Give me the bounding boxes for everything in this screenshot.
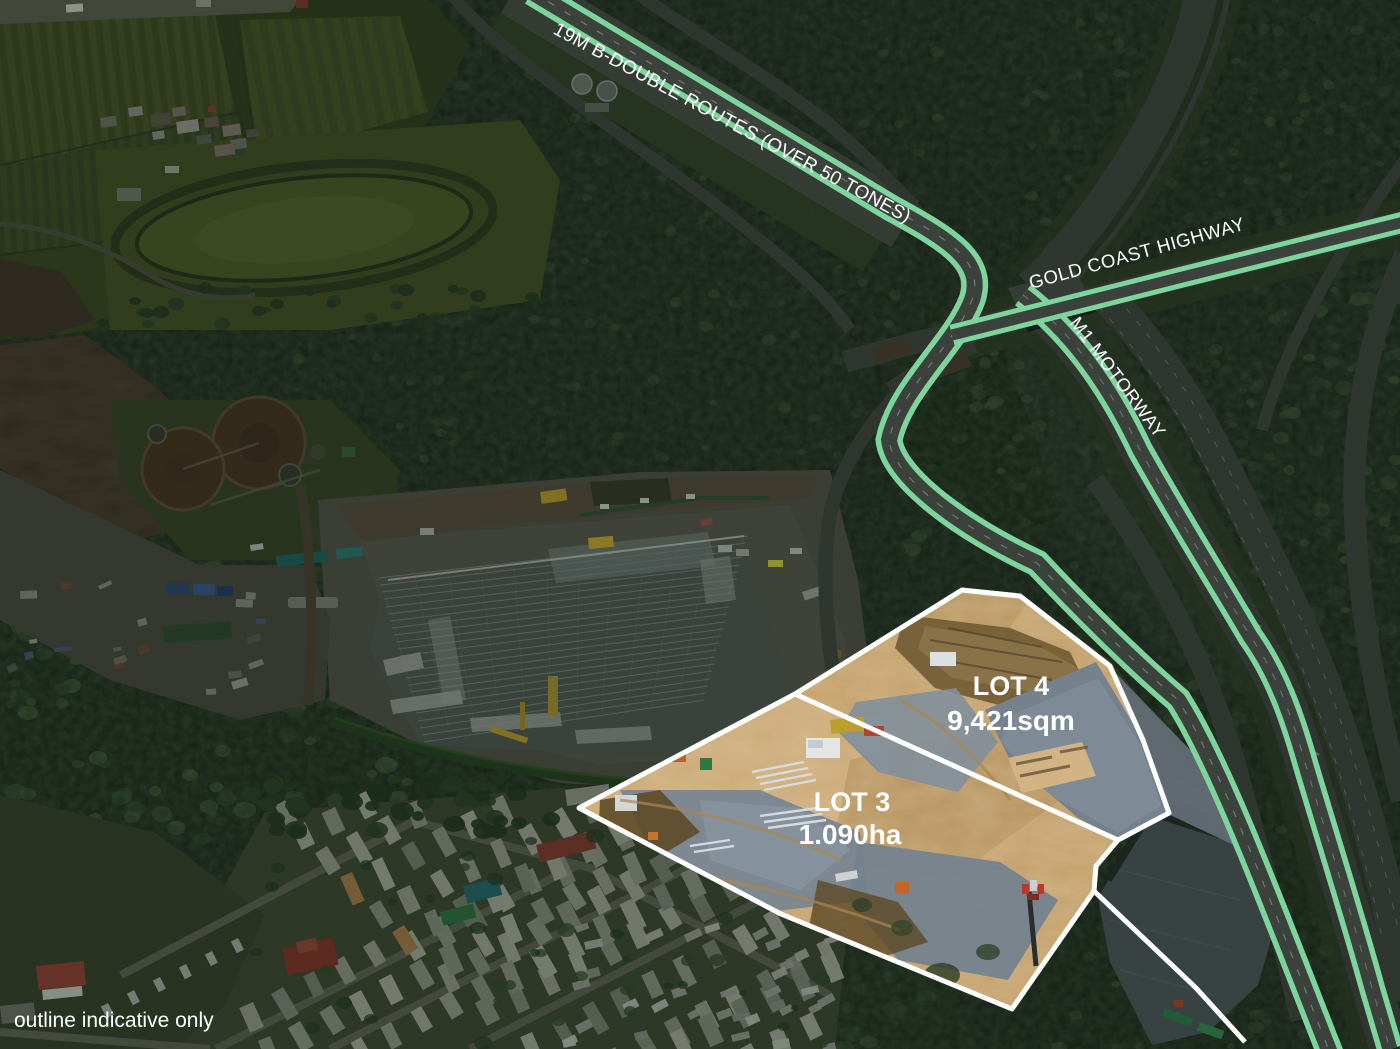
svg-text:outline indicative only: outline indicative only (14, 1009, 214, 1032)
svg-text:1.090ha: 1.090ha (799, 819, 902, 850)
svg-text:LOT 3: LOT 3 (814, 787, 891, 817)
svg-text:9,421sqm: 9,421sqm (947, 705, 1075, 736)
svg-text:LOT 4: LOT 4 (973, 671, 1050, 701)
